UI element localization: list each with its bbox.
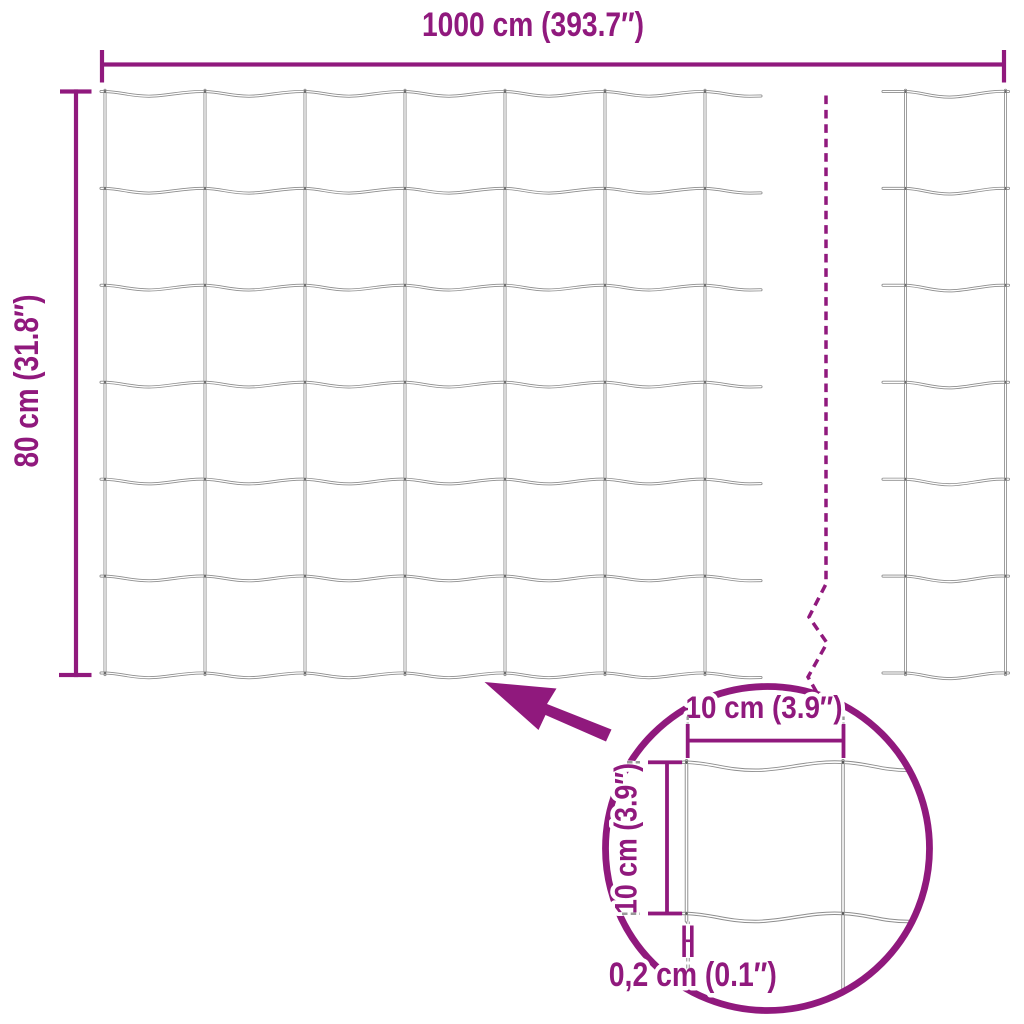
svg-text:0,2 cm (0.1″): 0,2 cm (0.1″) — [609, 956, 777, 994]
svg-text:10 cm (3.9″): 10 cm (3.9″) — [686, 689, 843, 725]
svg-text:1000 cm (393.7″): 1000 cm (393.7″) — [422, 6, 644, 44]
svg-text:80 cm (31.8″): 80 cm (31.8″) — [8, 295, 46, 468]
svg-text:10 cm (3.9″): 10 cm (3.9″) — [608, 763, 644, 914]
